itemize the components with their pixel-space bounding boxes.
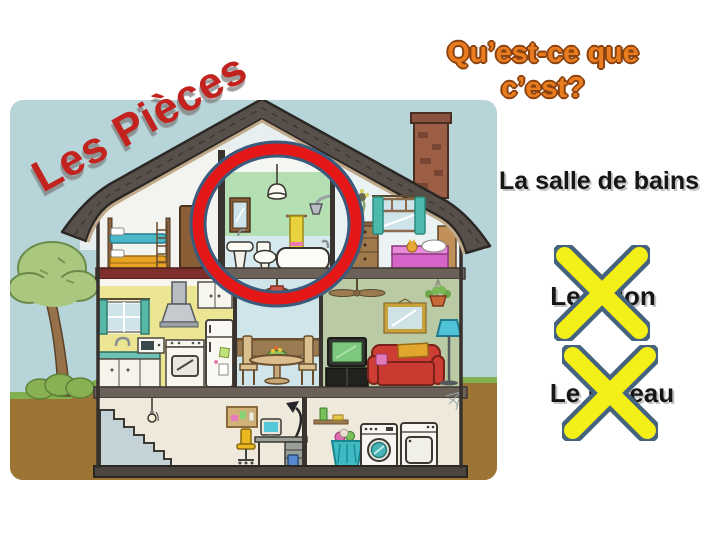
stove — [166, 340, 204, 387]
corkboard — [227, 407, 257, 427]
question-heading: Qu’est-ce que c’est? — [420, 36, 666, 106]
living-room — [323, 279, 461, 387]
kitchen — [98, 279, 233, 387]
bedroom-window — [372, 196, 426, 234]
answer-salle-de-bains: La salle de bains — [492, 166, 706, 197]
dryer — [401, 423, 437, 467]
wall-mirror — [384, 299, 426, 333]
tv — [326, 338, 368, 386]
x-mark-icon — [562, 345, 658, 441]
x-mark-icon — [554, 245, 650, 341]
sofa — [368, 343, 444, 385]
bathroom-mirror — [230, 198, 250, 232]
microwave — [138, 338, 164, 353]
question-line1: Qu’est-ce que — [447, 37, 639, 69]
washing-machine — [361, 424, 397, 467]
fridge — [206, 320, 233, 387]
kitchen-window — [98, 299, 150, 334]
question-line2: c’est? — [501, 72, 585, 104]
